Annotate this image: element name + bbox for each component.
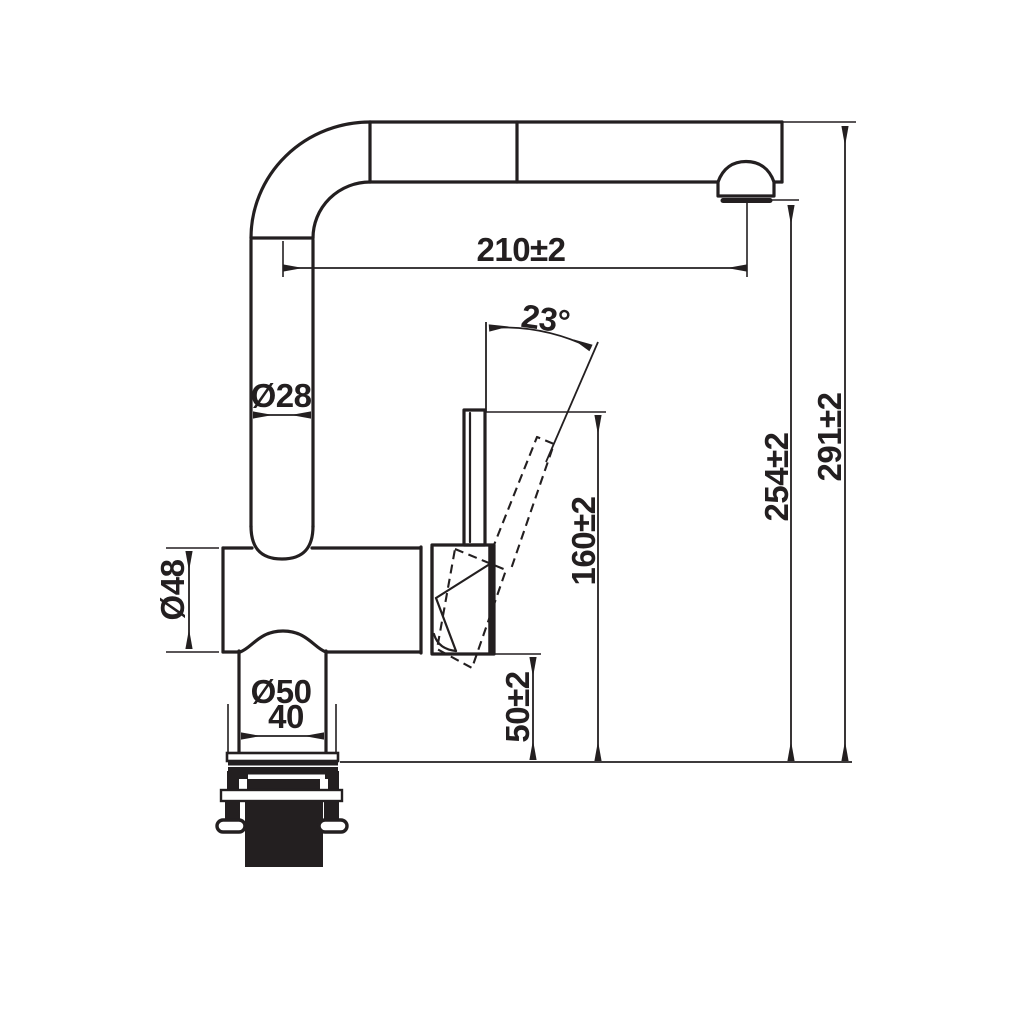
dim-total-height-label: 291±2 — [811, 392, 848, 481]
dim-base: Ø50 40 — [228, 673, 336, 752]
dim-pipe-diameter: Ø28 — [251, 377, 312, 415]
dim-pipe-diameter-label: Ø28 — [251, 377, 312, 414]
technical-drawing-page: 210±2 23° Ø28 Ø48 Ø50 40 160±2 50±2 — [0, 0, 1024, 1024]
aerator-nozzle — [718, 162, 774, 201]
dim-angle: 23° — [486, 297, 598, 462]
dim-handle-height-label: 160±2 — [565, 496, 602, 585]
faucet-dimension-drawing: 210±2 23° Ø28 Ø48 Ø50 40 160±2 50±2 — [0, 0, 1024, 1024]
handle-lever — [464, 410, 485, 545]
riser-pipe — [251, 122, 370, 559]
spout — [370, 122, 782, 182]
dim-body-diameter-label: Ø48 — [154, 559, 191, 620]
mounting-hardware — [217, 771, 347, 867]
mixer-body — [223, 547, 432, 653]
dim-neck-width-label: 40 — [268, 698, 304, 735]
dim-outlet-height: 254±2 — [758, 200, 799, 761]
dim-reach-label: 210±2 — [476, 231, 565, 268]
dim-outlet-height-label: 254±2 — [758, 432, 795, 521]
dim-angle-label: 23° — [519, 297, 572, 340]
dim-body-diameter: Ø48 — [154, 548, 219, 652]
dim-handle-bottom: 50±2 — [491, 654, 541, 760]
dim-reach: 210±2 — [283, 203, 747, 277]
dim-handle-bottom-label: 50±2 — [499, 671, 536, 742]
